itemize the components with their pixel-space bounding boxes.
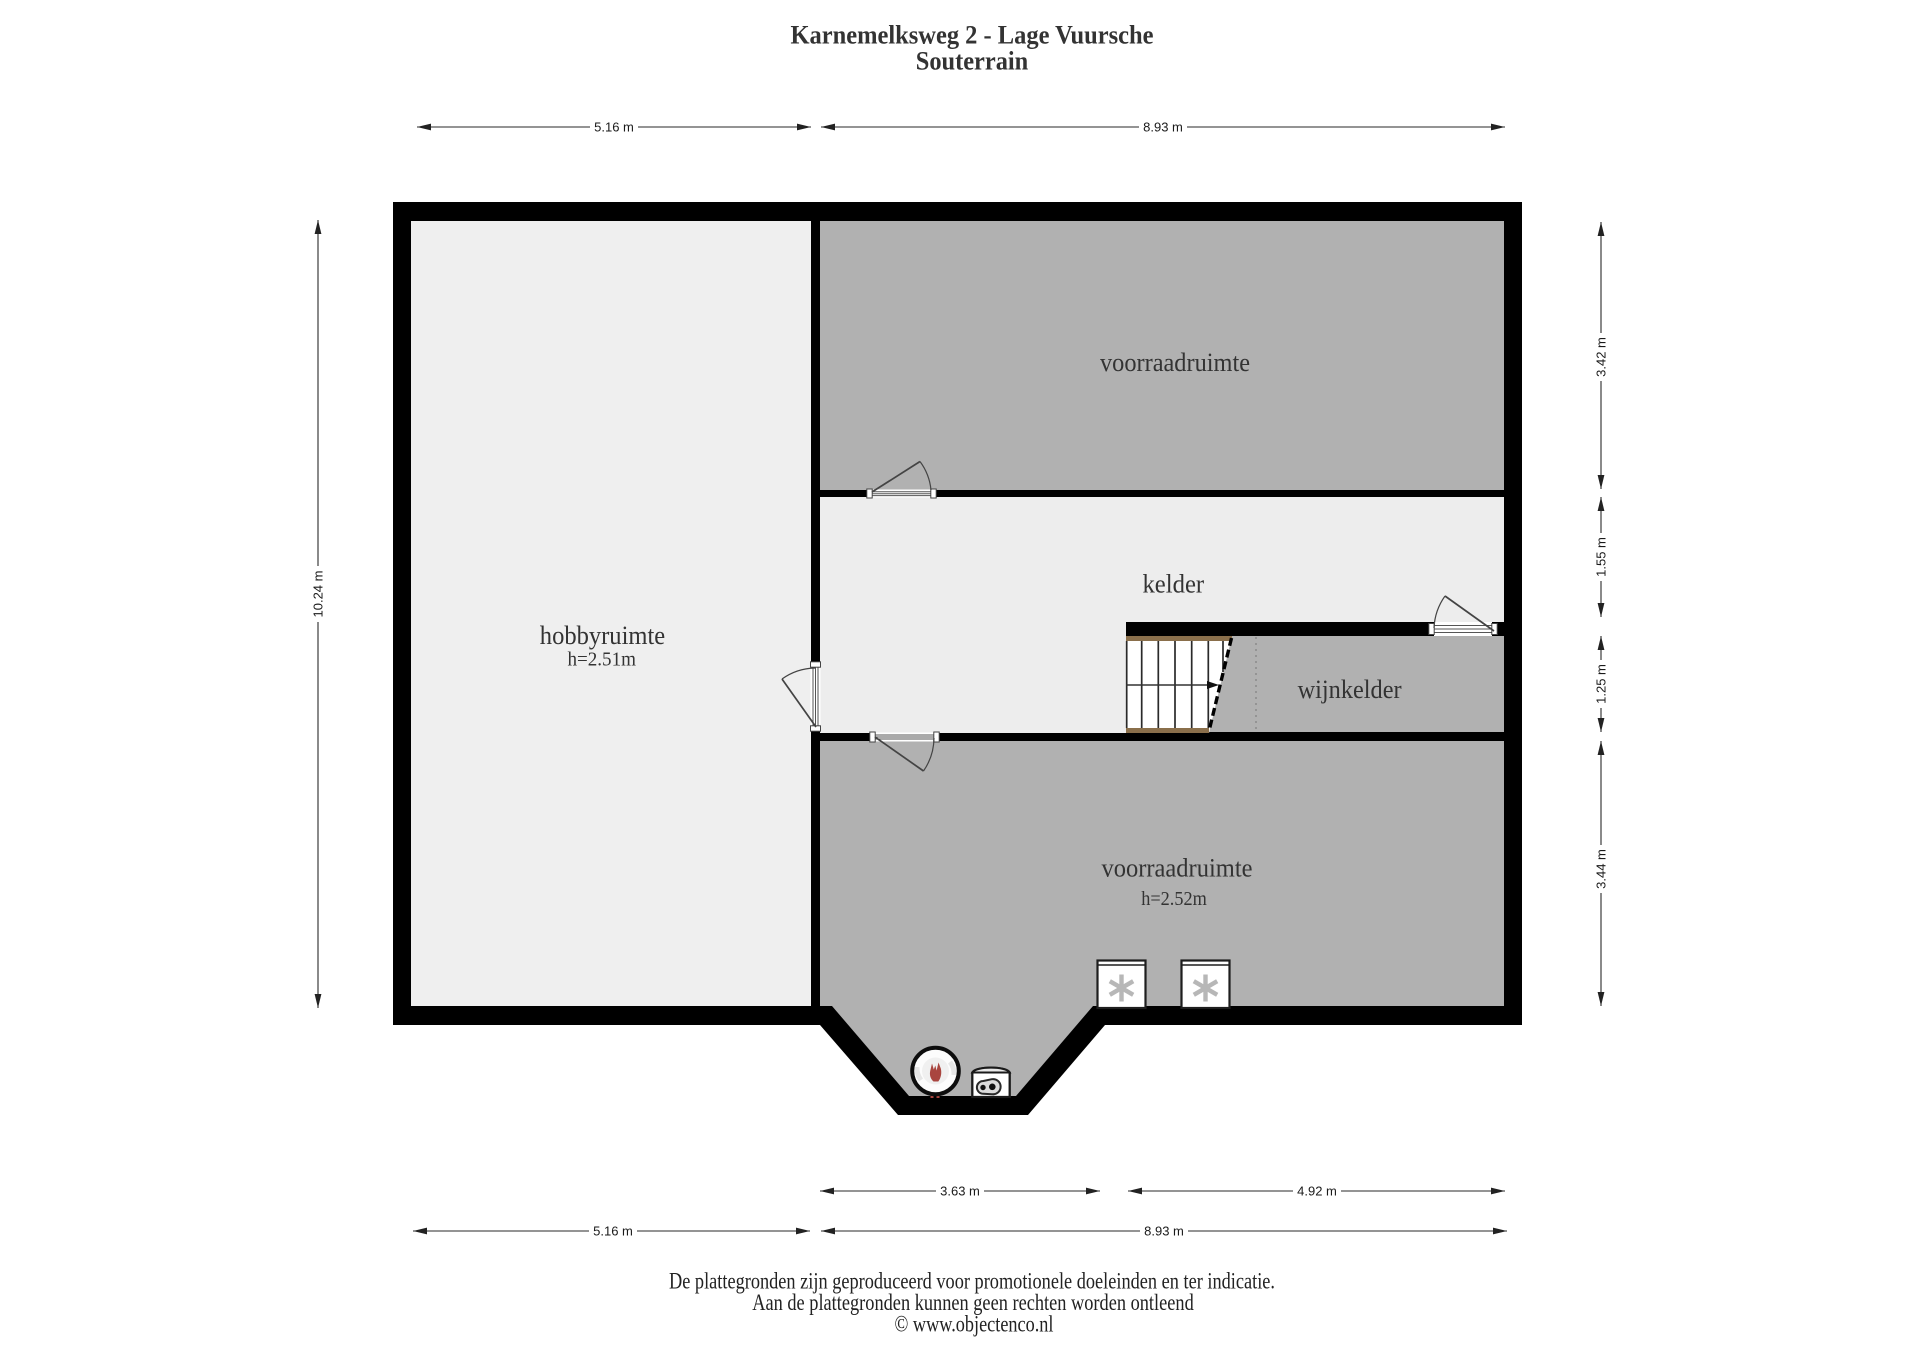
svg-text:5.16 m: 5.16 m <box>594 120 634 135</box>
svg-text:10.24 m: 10.24 m <box>311 571 326 618</box>
svg-text:3.44 m: 3.44 m <box>1594 849 1609 889</box>
svg-text:kelder: kelder <box>1142 570 1204 599</box>
svg-text:5.16 m: 5.16 m <box>593 1224 633 1239</box>
svg-text:wijnkelder: wijnkelder <box>1298 675 1402 704</box>
svg-text:1.55 m: 1.55 m <box>1594 537 1609 577</box>
svg-text:h=2.51m: h=2.51m <box>567 649 636 671</box>
svg-text:3.42 m: 3.42 m <box>1594 337 1609 377</box>
svg-text:3.63 m: 3.63 m <box>940 1184 980 1199</box>
svg-text:8.93 m: 8.93 m <box>1143 120 1183 135</box>
svg-text:Souterrain: Souterrain <box>916 47 1029 76</box>
svg-text:h=2.52m: h=2.52m <box>1141 888 1207 910</box>
svg-text:hobbyruimte: hobbyruimte <box>540 621 665 650</box>
svg-text:1.25 m: 1.25 m <box>1594 664 1609 704</box>
svg-text:© www.objectenco.nl: © www.objectenco.nl <box>895 1312 1054 1337</box>
svg-text:8.93 m: 8.93 m <box>1144 1224 1184 1239</box>
svg-text:voorraadruimte: voorraadruimte <box>1100 348 1250 377</box>
svg-text:voorraadruimte: voorraadruimte <box>1102 854 1253 883</box>
svg-text:4.92 m: 4.92 m <box>1297 1184 1337 1199</box>
svg-text:Karnemelksweg 2 - Lage Vuursch: Karnemelksweg 2 - Lage Vuursche <box>791 21 1154 50</box>
